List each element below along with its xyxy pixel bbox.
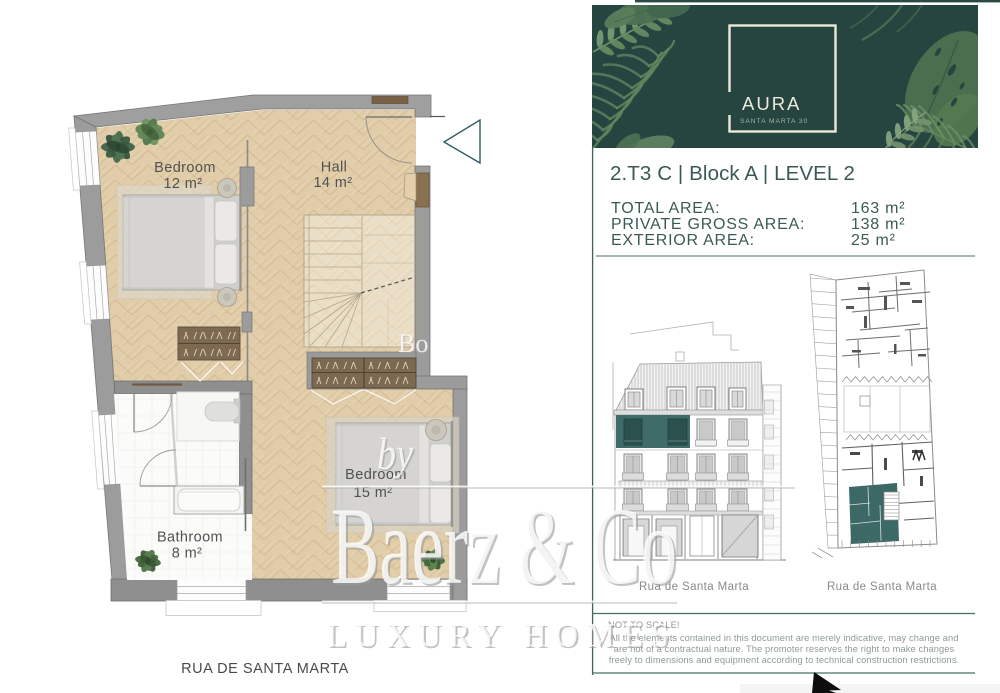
svg-text:Bedroom: Bedroom (154, 160, 216, 176)
svg-text:RUA DE SANTA MARTA: RUA DE SANTA MARTA (181, 661, 349, 677)
svg-text:SANTA MARTA 30: SANTA MARTA 30 (740, 118, 808, 125)
svg-text:EXTERIOR AREA:: EXTERIOR AREA: (611, 232, 755, 249)
svg-text:Baerz & Co: Baerz & Co (331, 485, 677, 607)
svg-text:138 m²: 138 m² (851, 216, 905, 233)
svg-text:14 m²: 14 m² (313, 175, 352, 191)
svg-text:25 m²: 25 m² (851, 232, 896, 249)
svg-text:by: by (377, 428, 413, 479)
svg-text:Hall: Hall (321, 160, 348, 176)
svg-text:Bo: Bo (398, 329, 428, 358)
svg-text:8 m²: 8 m² (172, 546, 203, 562)
svg-text:Bathroom: Bathroom (157, 530, 223, 546)
svg-text:PRIVATE GROSS AREA:: PRIVATE GROSS AREA: (611, 216, 805, 233)
svg-text:12 m²: 12 m² (163, 176, 202, 192)
svg-text:Rua de Santa Marta: Rua de Santa Marta (827, 581, 937, 593)
svg-text:AURA: AURA (742, 93, 801, 114)
svg-text:2.T3 C | Block A | LEVEL 2: 2.T3 C | Block A | LEVEL 2 (610, 162, 855, 185)
svg-text:163 m²: 163 m² (851, 200, 905, 217)
svg-text:TOTAL AREA:: TOTAL AREA: (611, 200, 720, 217)
svg-text:freely to dimensions and equip: freely to dimensions and equipment accor… (609, 655, 960, 665)
svg-text:LUXURY HOMES: LUXURY HOMES (327, 617, 677, 654)
